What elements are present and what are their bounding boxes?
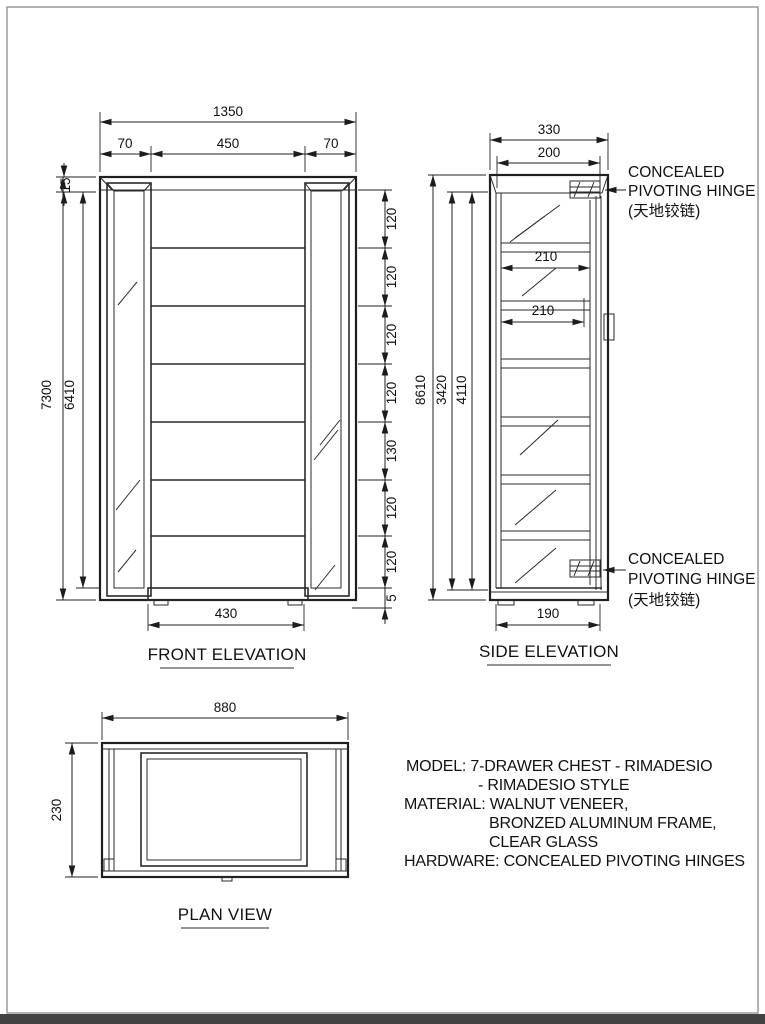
dim-side-inner-depth: 200 [538,145,561,160]
hinge-callout-bottom: CONCEALED PIVOTING HINGE (天地铰链) [603,551,755,609]
side-elevation-view: 330 200 8610 3420 4110 210 210 [413,122,755,665]
hinge-top-label-1: CONCEALED [628,164,724,181]
dim-front-overall-width: 1350 [213,104,243,119]
pivoting-hinge-top [570,181,600,198]
footer-bar [0,1014,765,1024]
front-elevation-title: FRONT ELEVATION [148,645,307,664]
dim-side-drawer-depth-upper: 210 [535,249,558,264]
dim-front-seg-1: 120 [384,208,399,231]
dim-plan-width: 880 [214,700,237,715]
dim-front-seg-4: 120 [384,382,399,405]
plan-dimensions: 880 230 [49,700,348,877]
plan-view-title: PLAN VIEW [178,905,272,924]
front-plinth [148,588,308,605]
dim-front-seg-5: 130 [384,440,399,463]
front-cabinet-drawing [100,177,356,605]
front-right-dimension-chain: 120 120 120 120 130 120 120 5 [352,190,399,624]
hinge-callout-top: CONCEALED PIVOTING HINGE (天地铰链) [605,164,755,220]
front-drawer-divisions [151,248,305,536]
hinge-top-label-2: PIVOTING HINGE [628,183,755,200]
hinge-bottom-label-1: CONCEALED [628,551,724,568]
spec-line-material-2: BRONZED ALUMINUM FRAME, [489,815,716,832]
spec-line-material: MATERIAL: WALNUT VENEER, [404,796,628,813]
dim-side-drawer-depth-lower: 210 [532,303,555,318]
drawing-sheet: 1350 70 450 70 15 7300 6410 [0,0,765,1024]
technical-drawing: 1350 70 450 70 15 7300 6410 [0,0,765,1024]
front-elevation-view: 1350 70 450 70 15 7300 6410 [39,104,399,668]
dim-front-left-door-width: 70 [117,136,132,151]
spec-line-model-2: - RIMADESIO STYLE [478,777,629,794]
plan-drawing [102,743,348,881]
dim-front-base-width: 430 [215,606,238,621]
spec-line-model: MODEL: 7-DRAWER CHEST - RIMADESIO [406,758,712,775]
dim-side-height-a: 3420 [434,375,449,405]
dim-front-seg-8: 5 [384,594,399,602]
dim-front-seg-3: 120 [384,324,399,347]
dim-front-seg-6: 120 [384,497,399,520]
spec-line-hardware: HARDWARE: CONCEALED PIVOTING HINGES [404,853,745,870]
dim-side-overall-height: 8610 [413,375,428,405]
dim-side-overall-depth: 330 [538,122,561,137]
front-right-glass-door [305,183,349,596]
dim-front-overall-height: 7300 [39,380,54,410]
front-left-glass-door [107,183,151,596]
plan-view: 880 230 PLAN VIEW [49,700,348,928]
hinge-bottom-label-3: (天地铰链) [628,591,700,609]
dim-front-seg-7: 120 [384,551,399,574]
side-shelf-divisions [501,243,590,540]
dim-front-seg-2: 120 [384,266,399,289]
dim-front-center-width: 450 [217,136,240,151]
hinge-top-label-3: (天地铰链) [628,202,700,220]
dim-side-height-b: 4110 [454,375,469,404]
side-elevation-title: SIDE ELEVATION [479,642,619,661]
side-cabinet-drawing [490,175,614,605]
spec-line-material-3: CLEAR GLASS [489,834,598,851]
spec-block: MODEL: 7-DRAWER CHEST - RIMADESIO - RIMA… [404,758,745,870]
dim-side-base-depth: 190 [537,606,560,621]
hinge-bottom-label-2: PIVOTING HINGE [628,571,755,588]
dim-front-inner-height: 6410 [62,380,77,410]
side-glass-door [590,196,614,590]
dim-front-right-door-width: 70 [323,136,338,151]
dim-front-top-thickness: 15 [58,177,73,192]
dim-plan-depth: 230 [49,799,64,822]
